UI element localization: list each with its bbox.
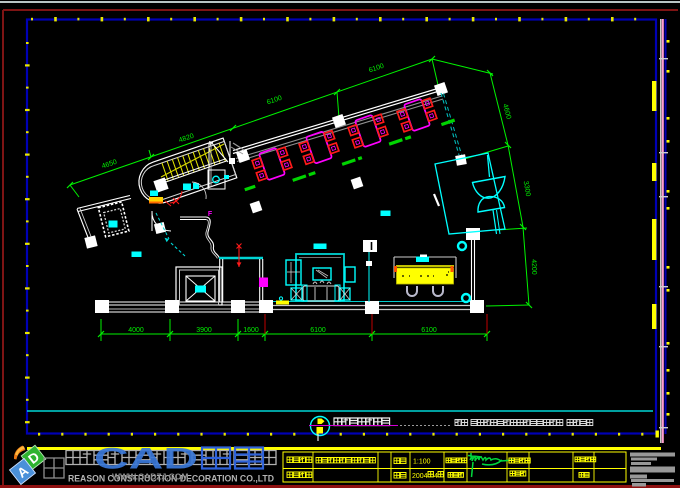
svg-text:1600: 1600 — [243, 327, 259, 334]
svg-text:4: 4 — [434, 473, 438, 480]
svg-text:6100: 6100 — [266, 95, 283, 107]
svg-text:4000: 4000 — [128, 327, 144, 334]
svg-text:3900: 3900 — [196, 327, 212, 334]
svg-text:6100: 6100 — [421, 327, 437, 334]
svg-text:F: F — [208, 211, 213, 218]
svg-text:WWW.CADZJ.COM: WWW.CADZJ.COM — [112, 472, 189, 482]
svg-text:4200: 4200 — [530, 259, 538, 275]
svg-text:3300: 3300 — [522, 180, 532, 197]
svg-text:4600: 4600 — [501, 103, 512, 120]
svg-text:2004: 2004 — [412, 473, 428, 480]
svg-text:1:100: 1:100 — [413, 459, 431, 466]
svg-text:6100: 6100 — [310, 327, 326, 334]
svg-text:6100: 6100 — [368, 63, 385, 75]
